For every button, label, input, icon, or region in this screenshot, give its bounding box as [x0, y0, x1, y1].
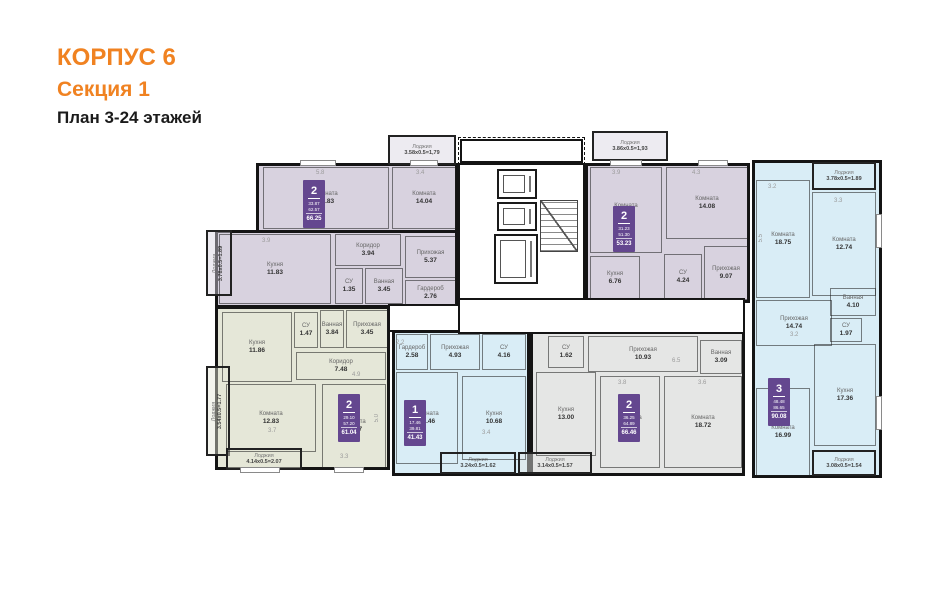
dimension-label: 3.6 [698, 380, 706, 386]
room-area: 11.86 [249, 347, 265, 355]
room-a5: СУ4.24 [664, 254, 702, 300]
room-a1: СУ1.35 [335, 268, 363, 304]
dimension-label: 6.5 [672, 358, 680, 364]
dimension-label: 3.3 [340, 454, 348, 460]
room-area: 1.47 [300, 330, 313, 338]
room-area: 3.45 [361, 329, 374, 337]
room-name: Комната [771, 232, 795, 239]
room-name: Кухня [558, 407, 574, 414]
room-area: 3.09 [715, 357, 728, 365]
room-area: 4.16 [498, 352, 511, 360]
room-area: 3.84 [326, 329, 339, 337]
room-name: СУ [345, 279, 353, 286]
room-name: Прихожая [629, 347, 657, 354]
dimension-label: 4.3 [692, 170, 700, 176]
badge-divider [409, 417, 421, 418]
dimension-label: 5.8 [316, 170, 324, 176]
room-a2: Кухня11.86 [222, 312, 292, 382]
elevator-shaft [497, 202, 537, 231]
room-area: 16.99 [775, 432, 791, 440]
window [876, 396, 882, 430]
room-a1: Коридор3.94 [335, 234, 401, 266]
badge-divider [343, 412, 355, 413]
room-area: 10.93 [635, 354, 651, 362]
room-name: СУ [842, 323, 850, 330]
badge-total-area: 53.23 [616, 238, 631, 248]
room-area: 13.00 [558, 414, 574, 422]
room-a5: Прихожая9.07 [704, 246, 748, 300]
loggia-label: Лоджия4.14х0.5=2.07 [246, 453, 281, 466]
loggia-area-formula: 3.86х0.5=1,93 [612, 146, 647, 153]
badge-floor-area: 39.81 [409, 426, 420, 432]
room-area: 9.07 [720, 273, 733, 281]
room-a1: Комната14.04 [392, 167, 456, 229]
room-area: 1.97 [840, 330, 853, 338]
room-a6: Кухня17.36 [814, 344, 876, 446]
room-area: 12.74 [836, 244, 852, 252]
room-name: Прихожая [712, 266, 740, 273]
badge-floor-area: 62.57 [308, 207, 319, 213]
room-area: 6.76 [609, 278, 622, 286]
entrance-vestibule [458, 137, 585, 165]
room-a6: Прихожая14.74 [756, 300, 832, 346]
badge-total-area: 61.04 [341, 427, 356, 437]
loggia-label: Лоджия3.54х0.5=1.77 [212, 393, 225, 428]
dimension-label: 3.9 [262, 238, 270, 244]
dimension-label: 3.9 [612, 170, 620, 176]
room-name: Комната [259, 411, 283, 418]
room-a6: Комната12.74 [812, 192, 876, 296]
loggia-area-formula: 3.14х0.5=1.57 [537, 463, 572, 470]
badge-total-area: 90.08 [771, 411, 786, 421]
room-name: Комната [832, 237, 856, 244]
room-a3: СУ4.16 [482, 334, 526, 370]
room-name: Кухня [249, 340, 265, 347]
room-name: Прихожая [353, 322, 381, 329]
room-area: 3.45 [378, 286, 391, 294]
dimension-label: 5.0 [374, 414, 380, 422]
floors-subtitle: План 3-24 этажей [57, 108, 202, 128]
loggia-area-formula: 3.08х0.5=1.54 [826, 463, 861, 470]
room-a4: Комната18.72 [664, 376, 742, 468]
badge-divider [773, 396, 785, 397]
room-name: Коридор [329, 359, 353, 366]
apartment-a3-badge[interactable]: 117.4639.8141.43 [404, 400, 426, 446]
dimension-label: 4.9 [352, 372, 360, 378]
badge-divider [618, 223, 630, 224]
window [698, 160, 728, 166]
room-area: 4.24 [677, 277, 690, 285]
loggia-label: Лоджия3.86х0.5=1,93 [612, 140, 647, 153]
room-a1: Гардероб2.76 [405, 280, 456, 306]
staircase [540, 200, 578, 252]
dimension-label: 3.4 [482, 430, 490, 436]
room-area: 2.58 [406, 352, 419, 360]
building-title: КОРПУС 6 [57, 44, 176, 72]
apartment-a1-badge[interactable]: 233.8762.5766.25 [303, 180, 325, 228]
badge-total-area: 66.25 [306, 213, 321, 223]
room-a2: Комната12.83 [226, 384, 316, 452]
room-a4: Кухня13.00 [536, 372, 596, 456]
room-a4: Прихожая10.93 [588, 336, 698, 372]
apartment-a6-badge[interactable]: 348.4886.6590.08 [768, 378, 790, 426]
window [300, 160, 336, 166]
room-name: Ванная [374, 279, 395, 286]
room-name: Ванная [843, 295, 864, 302]
dimension-label: 3.2 [768, 184, 776, 190]
badge-divider [308, 198, 320, 199]
room-name: Кухня [837, 388, 853, 395]
room-a1: Ванная3.45 [365, 268, 403, 304]
badge-room-count: 2 [311, 185, 317, 197]
room-name: Комната [695, 196, 719, 203]
loggia: Лоджия3.08х0.5=1.54 [812, 450, 876, 476]
loggia: Лоджия3.78х0.5=1.89 [812, 162, 876, 190]
dimension-label: 3.2 [790, 332, 798, 338]
loggia-area-formula: 3.78х0.5=1.89 [826, 176, 861, 183]
apartment-a4-badge[interactable]: 236.2564.8966.46 [618, 394, 640, 442]
room-area: 11.83 [267, 269, 283, 277]
window [334, 467, 364, 473]
loggia-label: Лоджия3.58х0.5=1,79 [404, 144, 439, 157]
room-area: 17.36 [837, 395, 853, 403]
room-name: Гардероб [417, 286, 443, 293]
room-a2: Прихожая3.45 [346, 310, 388, 348]
room-a2: СУ1.47 [294, 312, 318, 348]
badge-floor-area: 51.30 [618, 232, 629, 238]
room-name: СУ [679, 270, 687, 277]
apartment-a2-badge[interactable]: 229.1057.2061.04 [338, 394, 360, 442]
room-area: 1.62 [560, 352, 573, 360]
room-name: Ванная [711, 350, 732, 357]
elevator-shaft [497, 169, 537, 199]
badge-room-count: 1 [412, 404, 418, 416]
room-a3: Кухня10.68 [462, 376, 526, 460]
loggia-area-formula: 3.24х0.5=1.62 [460, 463, 495, 470]
loggia-area-formula: 4.14х0.5=2.07 [246, 459, 281, 466]
common-corridor [388, 304, 460, 332]
room-area: 4.93 [449, 352, 462, 360]
dimension-label: 3.7 [268, 428, 276, 434]
room-name: Прихожая [417, 250, 445, 257]
room-a5: Кухня6.76 [590, 256, 640, 300]
room-name: Кухня [267, 262, 283, 269]
badge-room-count: 2 [621, 210, 627, 222]
floorplan-page: КОРПУС 6 Секция 1 План 3-24 этажей Лоджи… [0, 0, 941, 600]
room-a5: Комната14.08 [666, 167, 748, 239]
window [876, 214, 882, 248]
dimension-label: 3.3 [834, 198, 842, 204]
room-area: 4.10 [847, 302, 860, 310]
room-area: 5.37 [424, 257, 437, 265]
badge-floor-area: 57.20 [343, 421, 354, 427]
room-a1: Кухня11.83 [219, 234, 331, 304]
loggia-label: Лоджия3.08х0.5=1.54 [826, 457, 861, 470]
badge-floor-area: 64.89 [623, 421, 634, 427]
window [610, 160, 642, 166]
room-area: 2.76 [424, 293, 437, 301]
room-area: 1.35 [343, 286, 356, 294]
room-name: СУ [500, 345, 508, 352]
room-a1: Комната19.83 [263, 167, 389, 229]
window [410, 160, 438, 166]
room-area: 7.48 [335, 366, 348, 374]
elevator-shaft [494, 234, 538, 284]
loggia-label: Лоджия3.14х0.5=1.57 [537, 457, 572, 470]
room-name: Комната [412, 191, 436, 198]
dimension-label: 3.4 [416, 170, 424, 176]
room-area: 18.72 [695, 422, 711, 430]
badge-total-area: 41.43 [407, 432, 422, 442]
room-name: Кухня [607, 271, 623, 278]
loggia: Лоджия3.86х0.5=1,93 [592, 131, 668, 161]
dimension-label: 2.2 [396, 340, 404, 346]
room-area: 10.68 [486, 418, 502, 426]
room-area: 12.83 [263, 418, 279, 426]
room-a3: Прихожая4.93 [430, 334, 480, 370]
room-a2: Ванная3.84 [320, 310, 344, 348]
badge-room-count: 2 [346, 399, 352, 411]
room-name: Коридор [356, 243, 380, 250]
badge-room-count: 2 [626, 399, 632, 411]
dimension-label: 3.8 [618, 380, 626, 386]
room-area: 14.04 [416, 198, 432, 206]
room-name: Прихожая [780, 316, 808, 323]
room-name: СУ [302, 323, 310, 330]
room-a6: Ванная4.10 [830, 288, 876, 316]
loggia-label: Лоджия3.78х0.5=1.89 [826, 170, 861, 183]
badge-floor-area: 86.65 [773, 405, 784, 411]
common-corridor [458, 298, 745, 334]
badge-divider [623, 412, 635, 413]
room-name: Прихожая [441, 345, 469, 352]
badge-total-area: 66.46 [621, 427, 636, 437]
room-name: Кухня [486, 411, 502, 418]
room-a2: Коридор7.48 [296, 352, 386, 380]
room-a4: Ванная3.09 [700, 340, 742, 374]
room-a6: Комната18.75 [756, 180, 810, 298]
room-a1: Прихожая5.37 [405, 236, 456, 278]
section-title: Секция 1 [57, 78, 150, 102]
loggia-area-formula: 3.54х0.5=1.77 [218, 393, 225, 428]
room-area: 18.75 [775, 239, 791, 247]
dimension-label: 5.5 [758, 234, 764, 242]
apartment-a5-badge[interactable]: 231.2351.3053.23 [613, 206, 635, 252]
room-a4: СУ1.62 [548, 336, 584, 368]
room-name: Комната [691, 415, 715, 422]
window [240, 467, 280, 473]
room-area: 14.08 [699, 203, 715, 211]
room-area: 14.74 [786, 323, 802, 331]
room-name: Ванная [322, 322, 343, 329]
room-a6: СУ1.97 [830, 318, 862, 342]
badge-room-count: 3 [776, 383, 782, 395]
loggia-area-formula: 3.58х0.5=1,79 [404, 150, 439, 157]
room-name: СУ [562, 345, 570, 352]
room-area: 3.94 [362, 250, 375, 258]
